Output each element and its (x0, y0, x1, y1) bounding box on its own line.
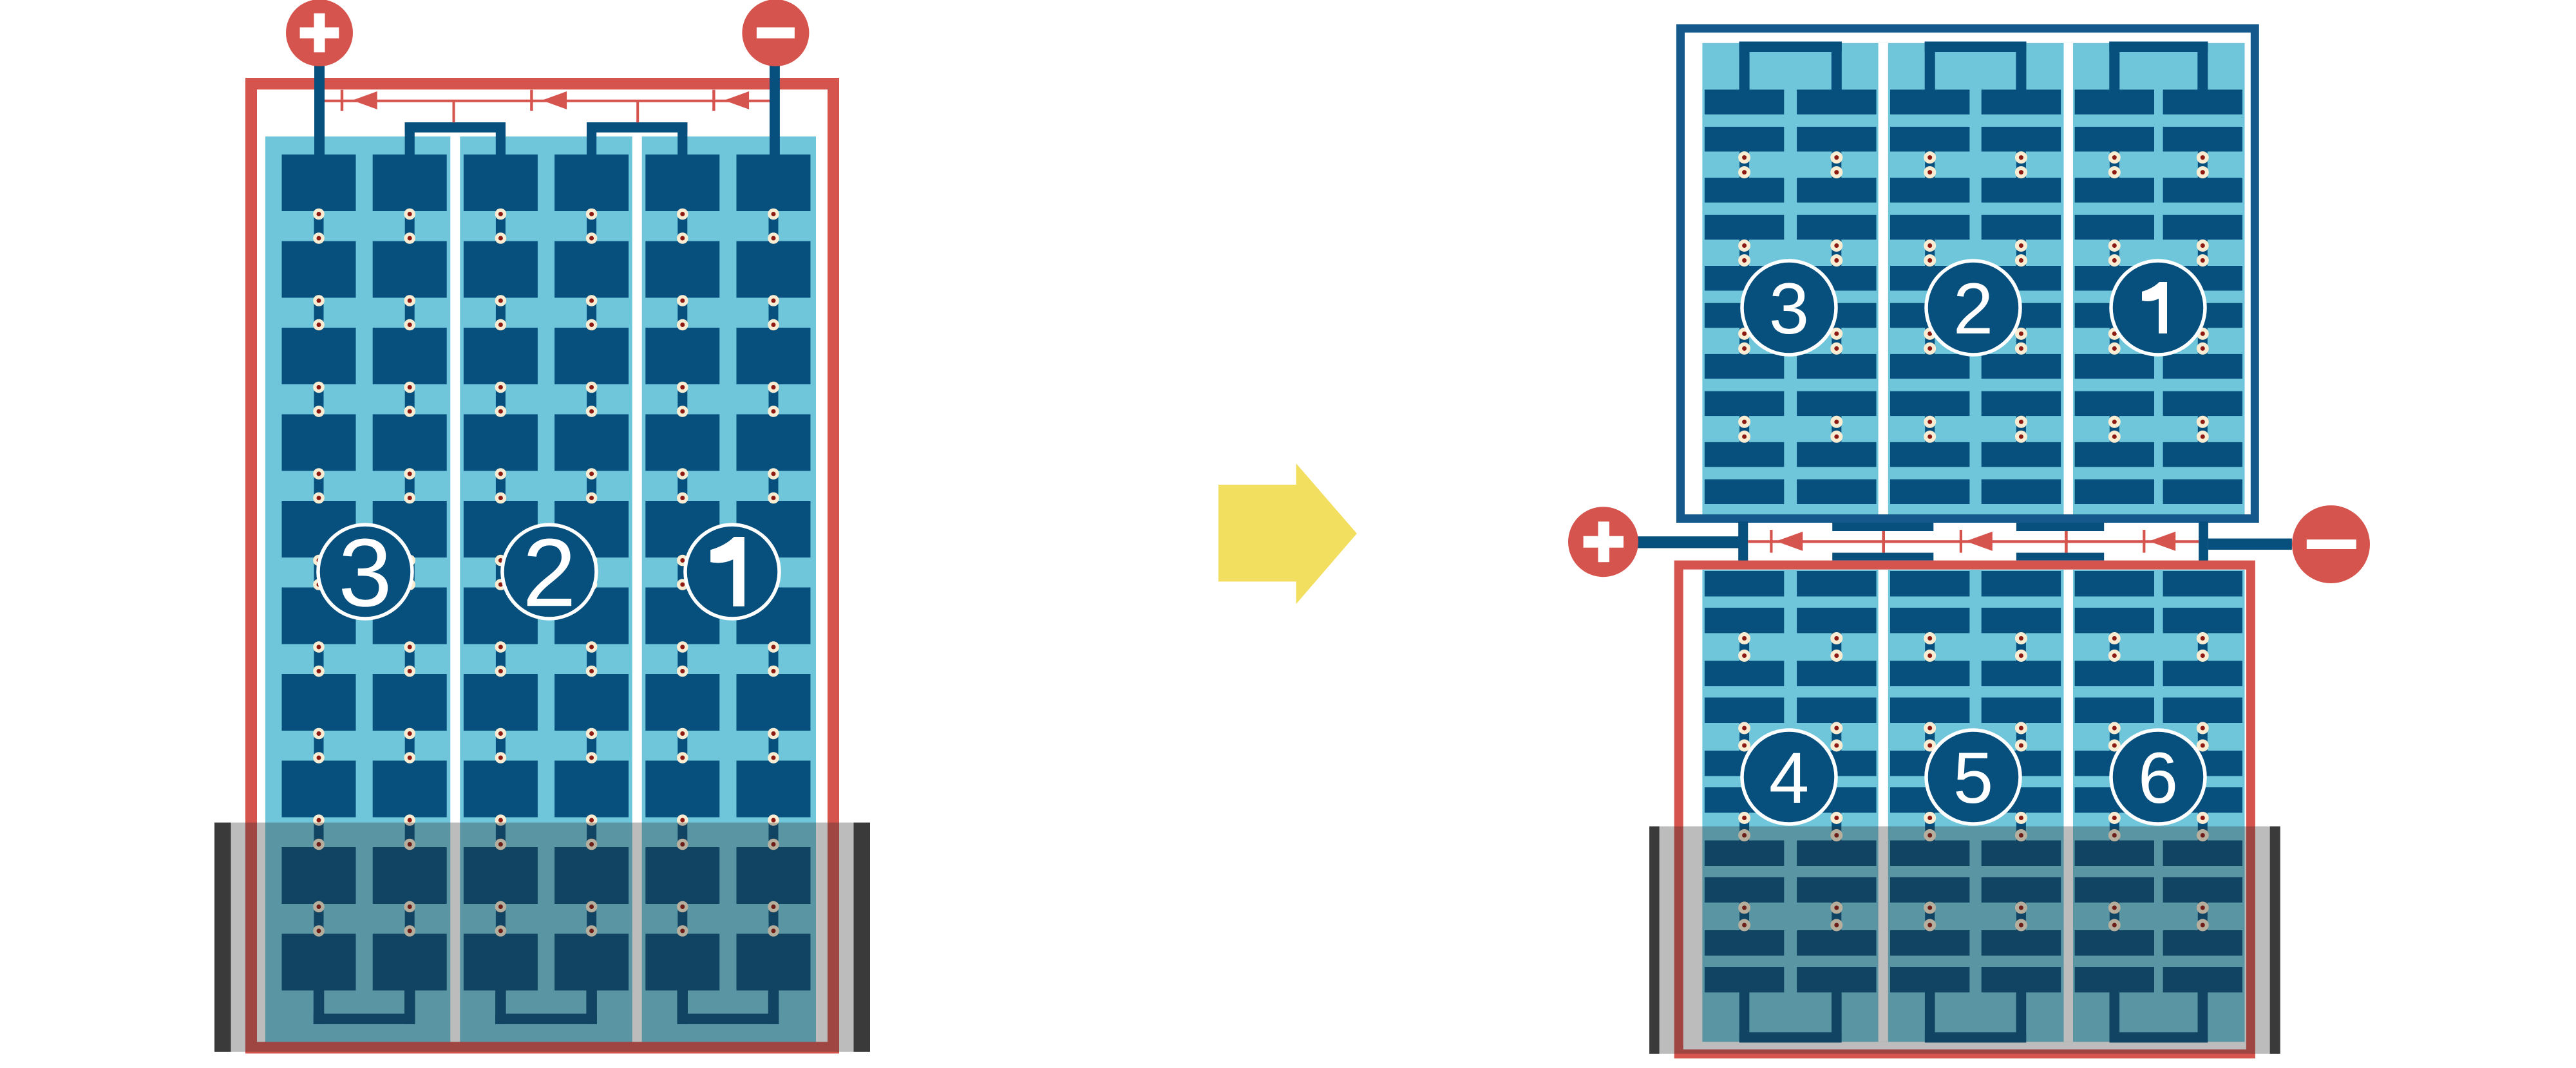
svg-text:6: 6 (2138, 738, 2178, 818)
svg-text:2: 2 (1953, 268, 1993, 349)
svg-text:2: 2 (522, 518, 576, 626)
svg-text:3: 3 (338, 518, 392, 626)
svg-text:5: 5 (1953, 738, 1993, 818)
svg-text:3: 3 (1769, 268, 1809, 349)
svg-text:4: 4 (1769, 738, 1809, 818)
